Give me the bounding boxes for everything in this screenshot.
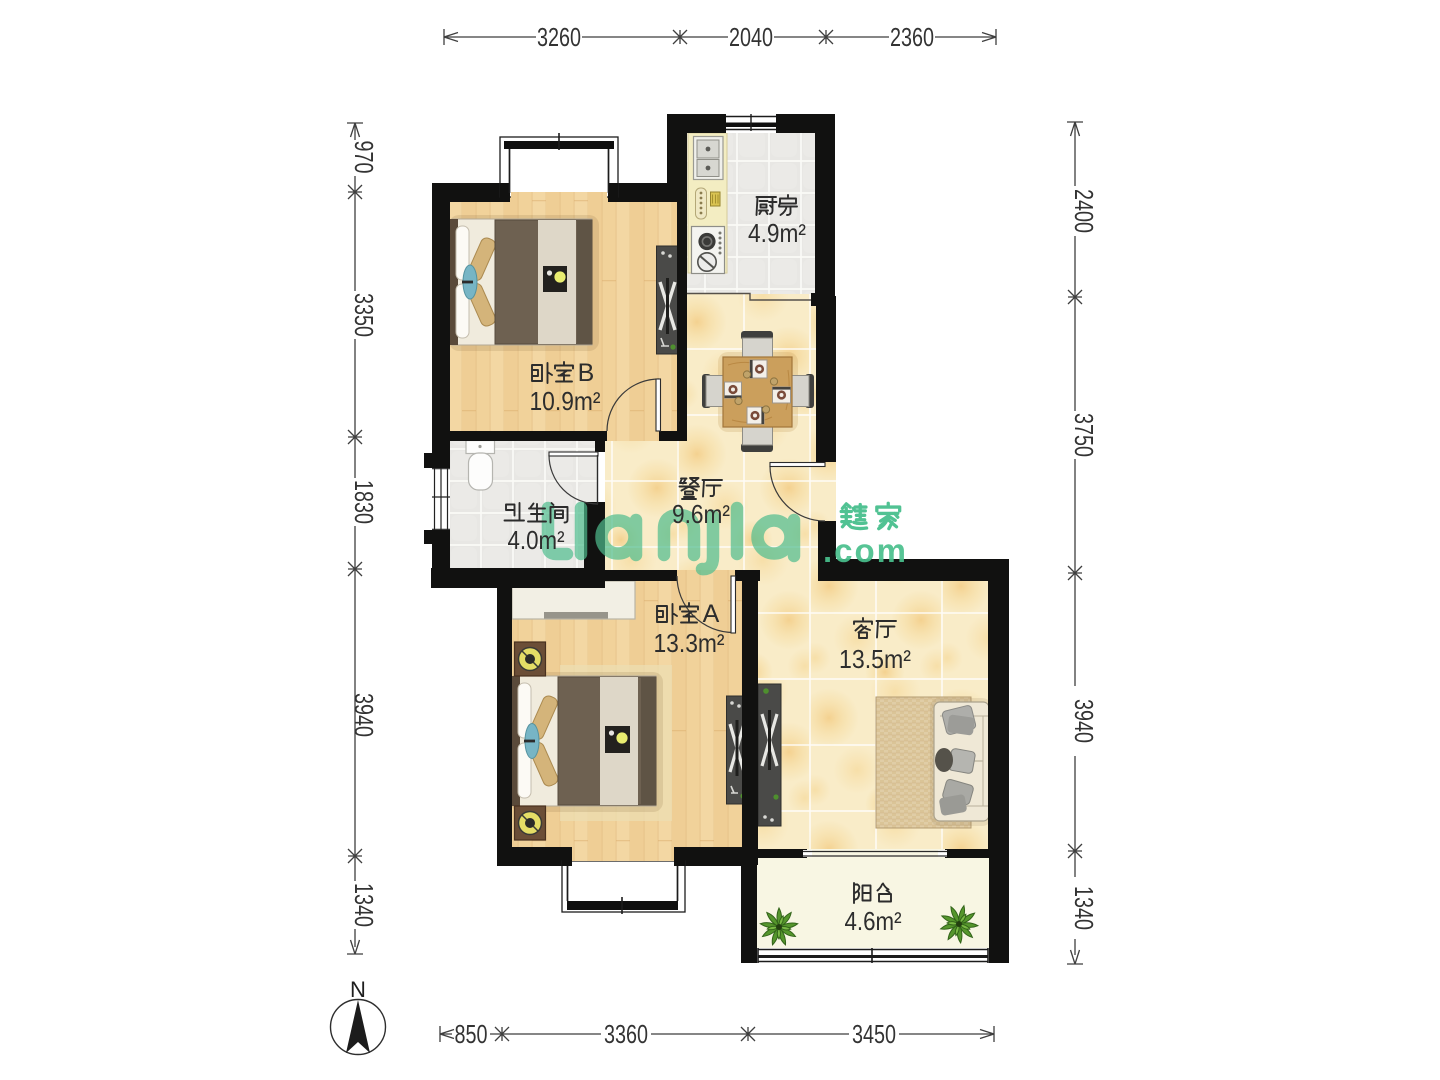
svg-text:3940: 3940	[349, 693, 379, 737]
svg-text:1340: 1340	[349, 883, 379, 927]
svg-text:9.6m²: 9.6m²	[672, 499, 730, 529]
svg-text:2400: 2400	[1069, 189, 1099, 233]
svg-text:A: A	[703, 600, 720, 628]
svg-text:3940: 3940	[1069, 699, 1099, 743]
svg-text:1340: 1340	[1069, 886, 1099, 930]
svg-text:3360: 3360	[604, 1019, 648, 1049]
svg-text:3450: 3450	[852, 1019, 896, 1049]
svg-text:2040: 2040	[729, 22, 773, 52]
svg-text:4.9m²: 4.9m²	[748, 218, 806, 248]
svg-text:13.3m²: 13.3m²	[654, 628, 725, 658]
svg-text:3350: 3350	[349, 293, 379, 337]
svg-text:13.5m²: 13.5m²	[839, 644, 911, 674]
svg-text:3750: 3750	[1069, 413, 1099, 457]
svg-text:970: 970	[349, 141, 379, 174]
svg-text:N: N	[350, 977, 366, 1002]
svg-text:10.9m²: 10.9m²	[530, 386, 601, 416]
svg-text:1830: 1830	[349, 480, 379, 524]
svg-text:4.0m²: 4.0m²	[508, 525, 565, 555]
svg-text:4.6m²: 4.6m²	[845, 906, 902, 936]
svg-text:2360: 2360	[890, 22, 934, 52]
svg-text:.com: .com	[823, 532, 908, 569]
svg-text:850: 850	[455, 1019, 488, 1049]
svg-text:B: B	[578, 359, 595, 387]
svg-text:3260: 3260	[537, 22, 581, 52]
